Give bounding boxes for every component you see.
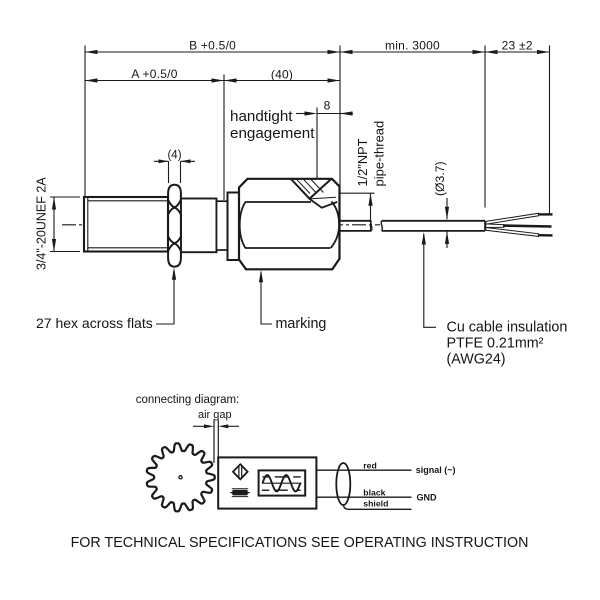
svg-text:PTFE 0.21mm²: PTFE 0.21mm² (447, 336, 544, 352)
svg-text:connecting diagram:: connecting diagram: (136, 394, 240, 406)
svg-text:shield: shield (363, 499, 388, 509)
svg-text:Cu cable insulation: Cu cable insulation (447, 320, 568, 336)
svg-text:(Ø3.7): (Ø3.7) (433, 161, 447, 196)
svg-text:8: 8 (324, 99, 331, 113)
svg-text:27 hex across flats: 27 hex across flats (36, 315, 153, 331)
svg-text:1/2"NPT: 1/2"NPT (355, 138, 370, 186)
svg-text:A +0.5/0: A +0.5/0 (131, 67, 177, 81)
svg-text:black: black (363, 488, 385, 498)
svg-text:(AWG24): (AWG24) (447, 352, 506, 368)
svg-text:marking: marking (276, 316, 327, 332)
svg-text:signal (~): signal (~) (416, 465, 456, 475)
svg-text:engagement: engagement (230, 125, 315, 142)
svg-text:(40): (40) (271, 68, 293, 82)
svg-text:min. 3000: min. 3000 (385, 38, 440, 52)
svg-text:23 ±2: 23 ±2 (502, 38, 533, 52)
svg-text:B +0.5/0: B +0.5/0 (189, 38, 236, 52)
svg-text:air gap: air gap (198, 409, 232, 421)
svg-text:red: red (363, 460, 377, 470)
svg-text:GND: GND (417, 493, 438, 503)
svg-text:handtight: handtight (230, 108, 293, 125)
svg-text:pipe-thread: pipe-thread (372, 121, 387, 187)
svg-text:FOR TECHNICAL SPECIFICATIONS S: FOR TECHNICAL SPECIFICATIONS SEE OPERATI… (71, 535, 529, 551)
svg-text:3/4"-20UNEF 2A: 3/4"-20UNEF 2A (35, 177, 49, 270)
svg-text:(4): (4) (167, 150, 181, 162)
